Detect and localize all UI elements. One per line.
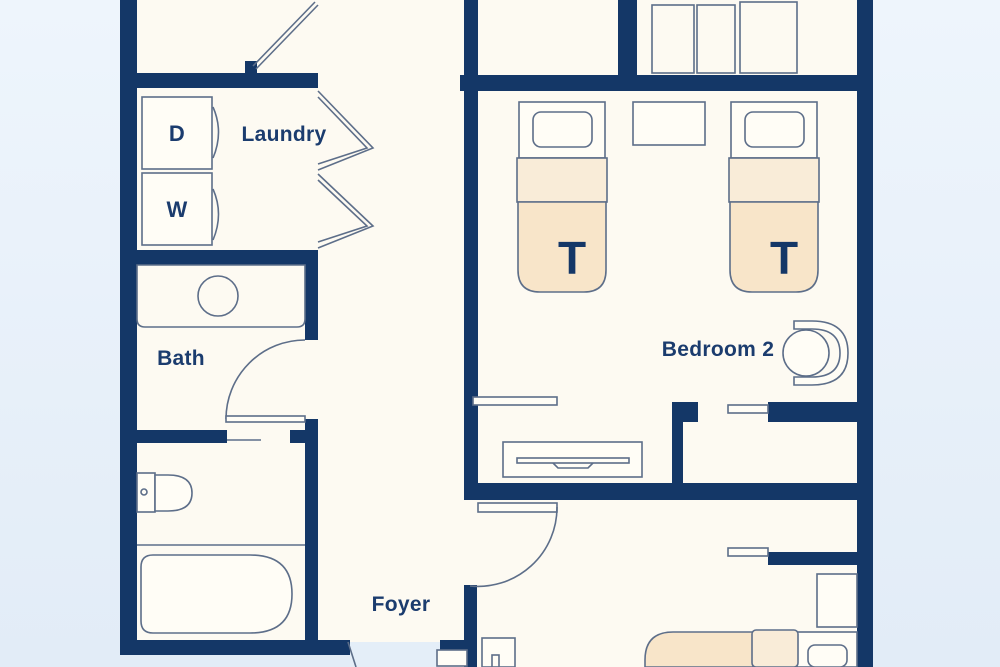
wall-laundry-bath	[120, 250, 313, 265]
chair-seat	[783, 330, 829, 376]
hall-door-leaf	[478, 503, 557, 512]
wall-entry-stub	[440, 640, 466, 650]
twin-bed-mark-2: T	[770, 232, 798, 284]
bed1-blanket-fold	[517, 158, 607, 202]
wall-left-exterior	[120, 0, 137, 655]
closet-shelf-3	[740, 2, 797, 73]
bedroom1-bed-blanket	[645, 632, 753, 667]
entry-threshold	[437, 650, 467, 666]
bedroom1-closet-door-leaf	[728, 548, 768, 556]
toilet-bowl	[155, 475, 192, 511]
dresser-handle-bar	[517, 458, 629, 463]
bed1-pillow	[533, 112, 592, 147]
wall-bath-right-upper	[305, 250, 318, 340]
wall-laundry-top	[120, 73, 318, 88]
hall-fixture-handle	[492, 655, 499, 667]
bedroom2-closet-door-leaf	[728, 405, 768, 413]
wall-bedroom1-closet	[768, 552, 861, 565]
nightstand-between-beds	[633, 102, 705, 145]
wall-bedroom2-bottom-right	[768, 402, 861, 422]
foyer-label: Foyer	[372, 593, 431, 616]
floor-plan-canvas: Laundry Bath Foyer Bedroom 2 D W T T	[0, 0, 1000, 667]
top-closet	[652, 2, 797, 73]
sink-basin	[198, 276, 238, 316]
wall-top-closet-right	[618, 0, 637, 75]
wall-right-exterior	[857, 0, 873, 667]
toilet-tank	[137, 473, 155, 512]
alcove-door-leaf	[473, 397, 557, 405]
closet-shelf-1	[652, 5, 694, 73]
wall-bedroom2-top	[460, 75, 873, 91]
wall-corridor-bottom	[478, 483, 861, 500]
bedroom2-label: Bedroom 2	[662, 338, 774, 361]
twin-bed-mark-1: T	[558, 232, 586, 284]
closet-shelf-2	[697, 5, 735, 73]
bedroom1-pillow	[808, 645, 847, 667]
dryer-label: D	[169, 121, 185, 146]
bathtub	[141, 555, 292, 633]
bed2-blanket-fold	[729, 158, 819, 202]
floor-plan: Laundry Bath Foyer Bedroom 2 D W T T	[0, 0, 1000, 667]
bath-door-leaf	[226, 416, 305, 422]
bath-label: Bath	[157, 347, 205, 370]
wall-bottom-left	[120, 640, 350, 655]
bedroom1-nightstand	[817, 574, 857, 627]
laundry-label: Laundry	[242, 123, 327, 146]
bed2-pillow	[745, 112, 804, 147]
washer-label: W	[166, 197, 187, 222]
wall-bath-right-lower	[305, 419, 318, 655]
bedroom1-bed-blanket-fold	[752, 630, 798, 667]
wall-bath-divider-left	[120, 430, 227, 443]
entry-doorway-gap	[350, 642, 440, 667]
